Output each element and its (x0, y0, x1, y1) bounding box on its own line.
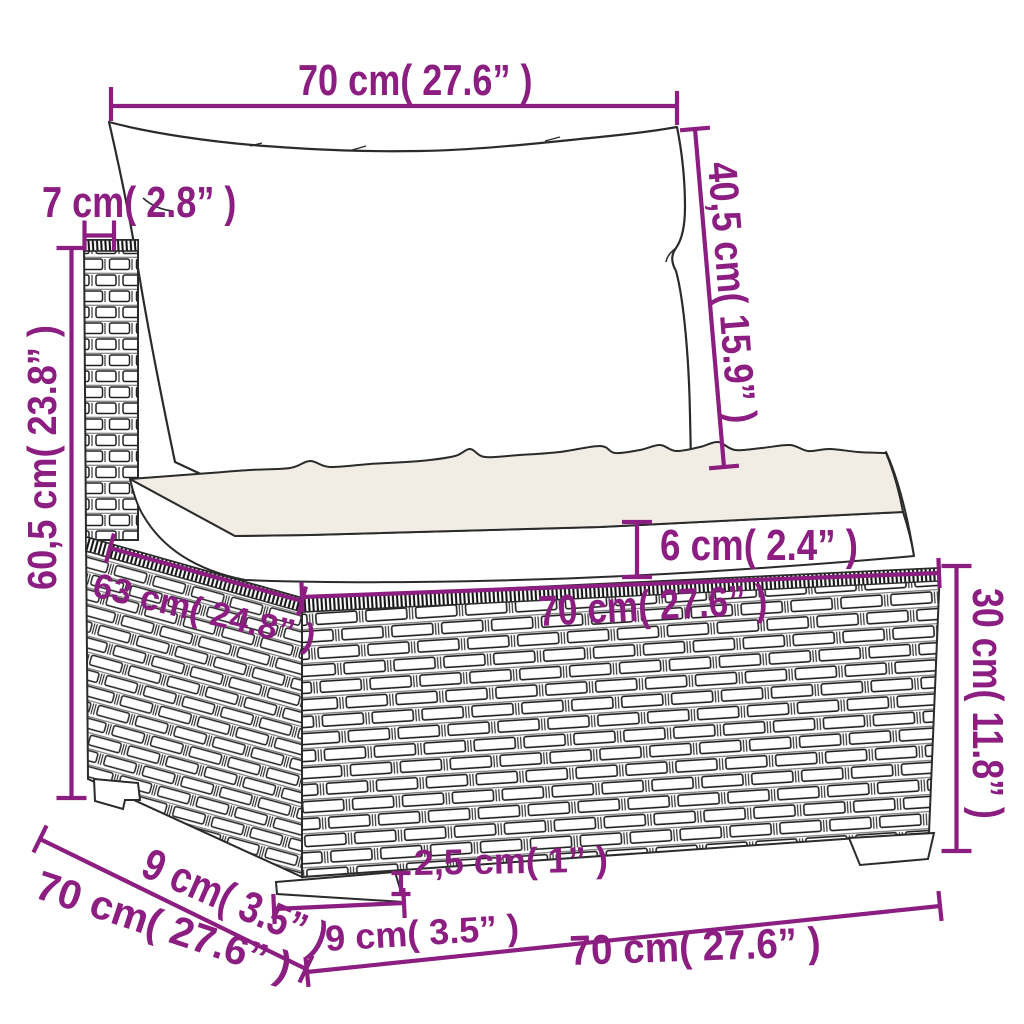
svg-text:6 cm( 2.4” ): 6 cm( 2.4” ) (660, 520, 858, 570)
svg-text:60,5 cm( 23.8” ): 60,5 cm( 23.8” ) (20, 325, 66, 590)
svg-text:30 cm( 11.8” ): 30 cm( 11.8” ) (963, 588, 1011, 819)
svg-text:2,5 cm( 1” ): 2,5 cm( 1” ) (413, 839, 608, 883)
svg-text:70 cm( 27.6” ): 70 cm( 27.6” ) (298, 56, 533, 105)
svg-text:7 cm( 2.8” ): 7 cm( 2.8” ) (42, 178, 236, 227)
svg-text:70 cm( 27.6” ): 70 cm( 27.6” ) (569, 918, 822, 975)
